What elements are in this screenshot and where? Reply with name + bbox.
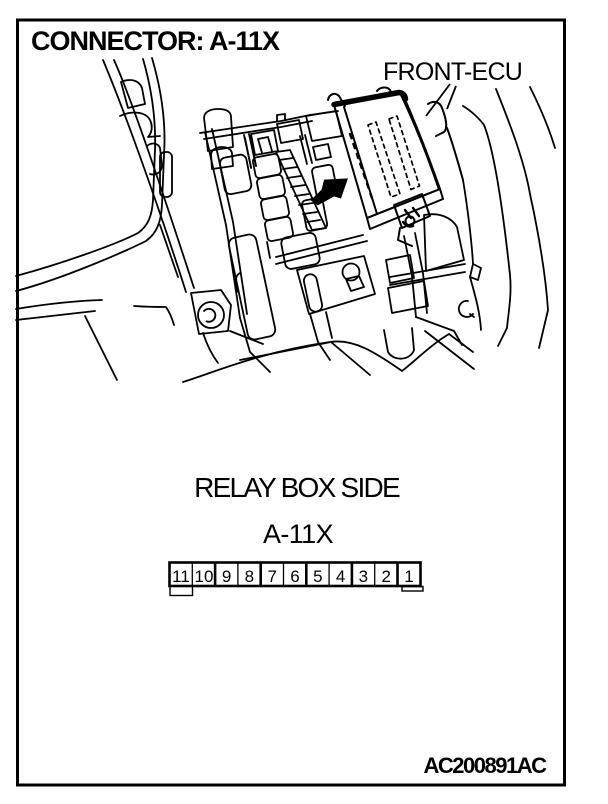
svg-text:7: 7 (267, 567, 276, 586)
svg-text:3: 3 (359, 567, 368, 586)
svg-text:FRONT-ECU: FRONT-ECU (383, 58, 522, 86)
svg-text:RELAY BOX SIDE: RELAY BOX SIDE (194, 472, 400, 503)
svg-text:4: 4 (336, 567, 345, 586)
svg-text:6: 6 (290, 567, 299, 586)
svg-text:AC200891AC: AC200891AC (424, 753, 548, 778)
svg-text:1: 1 (404, 567, 413, 586)
svg-text:5: 5 (313, 567, 322, 586)
svg-text:CONNECTOR: A-11X: CONNECTOR: A-11X (31, 26, 280, 56)
svg-text:A-11X: A-11X (263, 519, 334, 549)
svg-text:10: 10 (195, 567, 214, 586)
svg-text:11: 11 (172, 567, 190, 586)
svg-text:8: 8 (245, 567, 254, 586)
svg-text:9: 9 (222, 567, 231, 586)
svg-text:2: 2 (381, 567, 390, 586)
